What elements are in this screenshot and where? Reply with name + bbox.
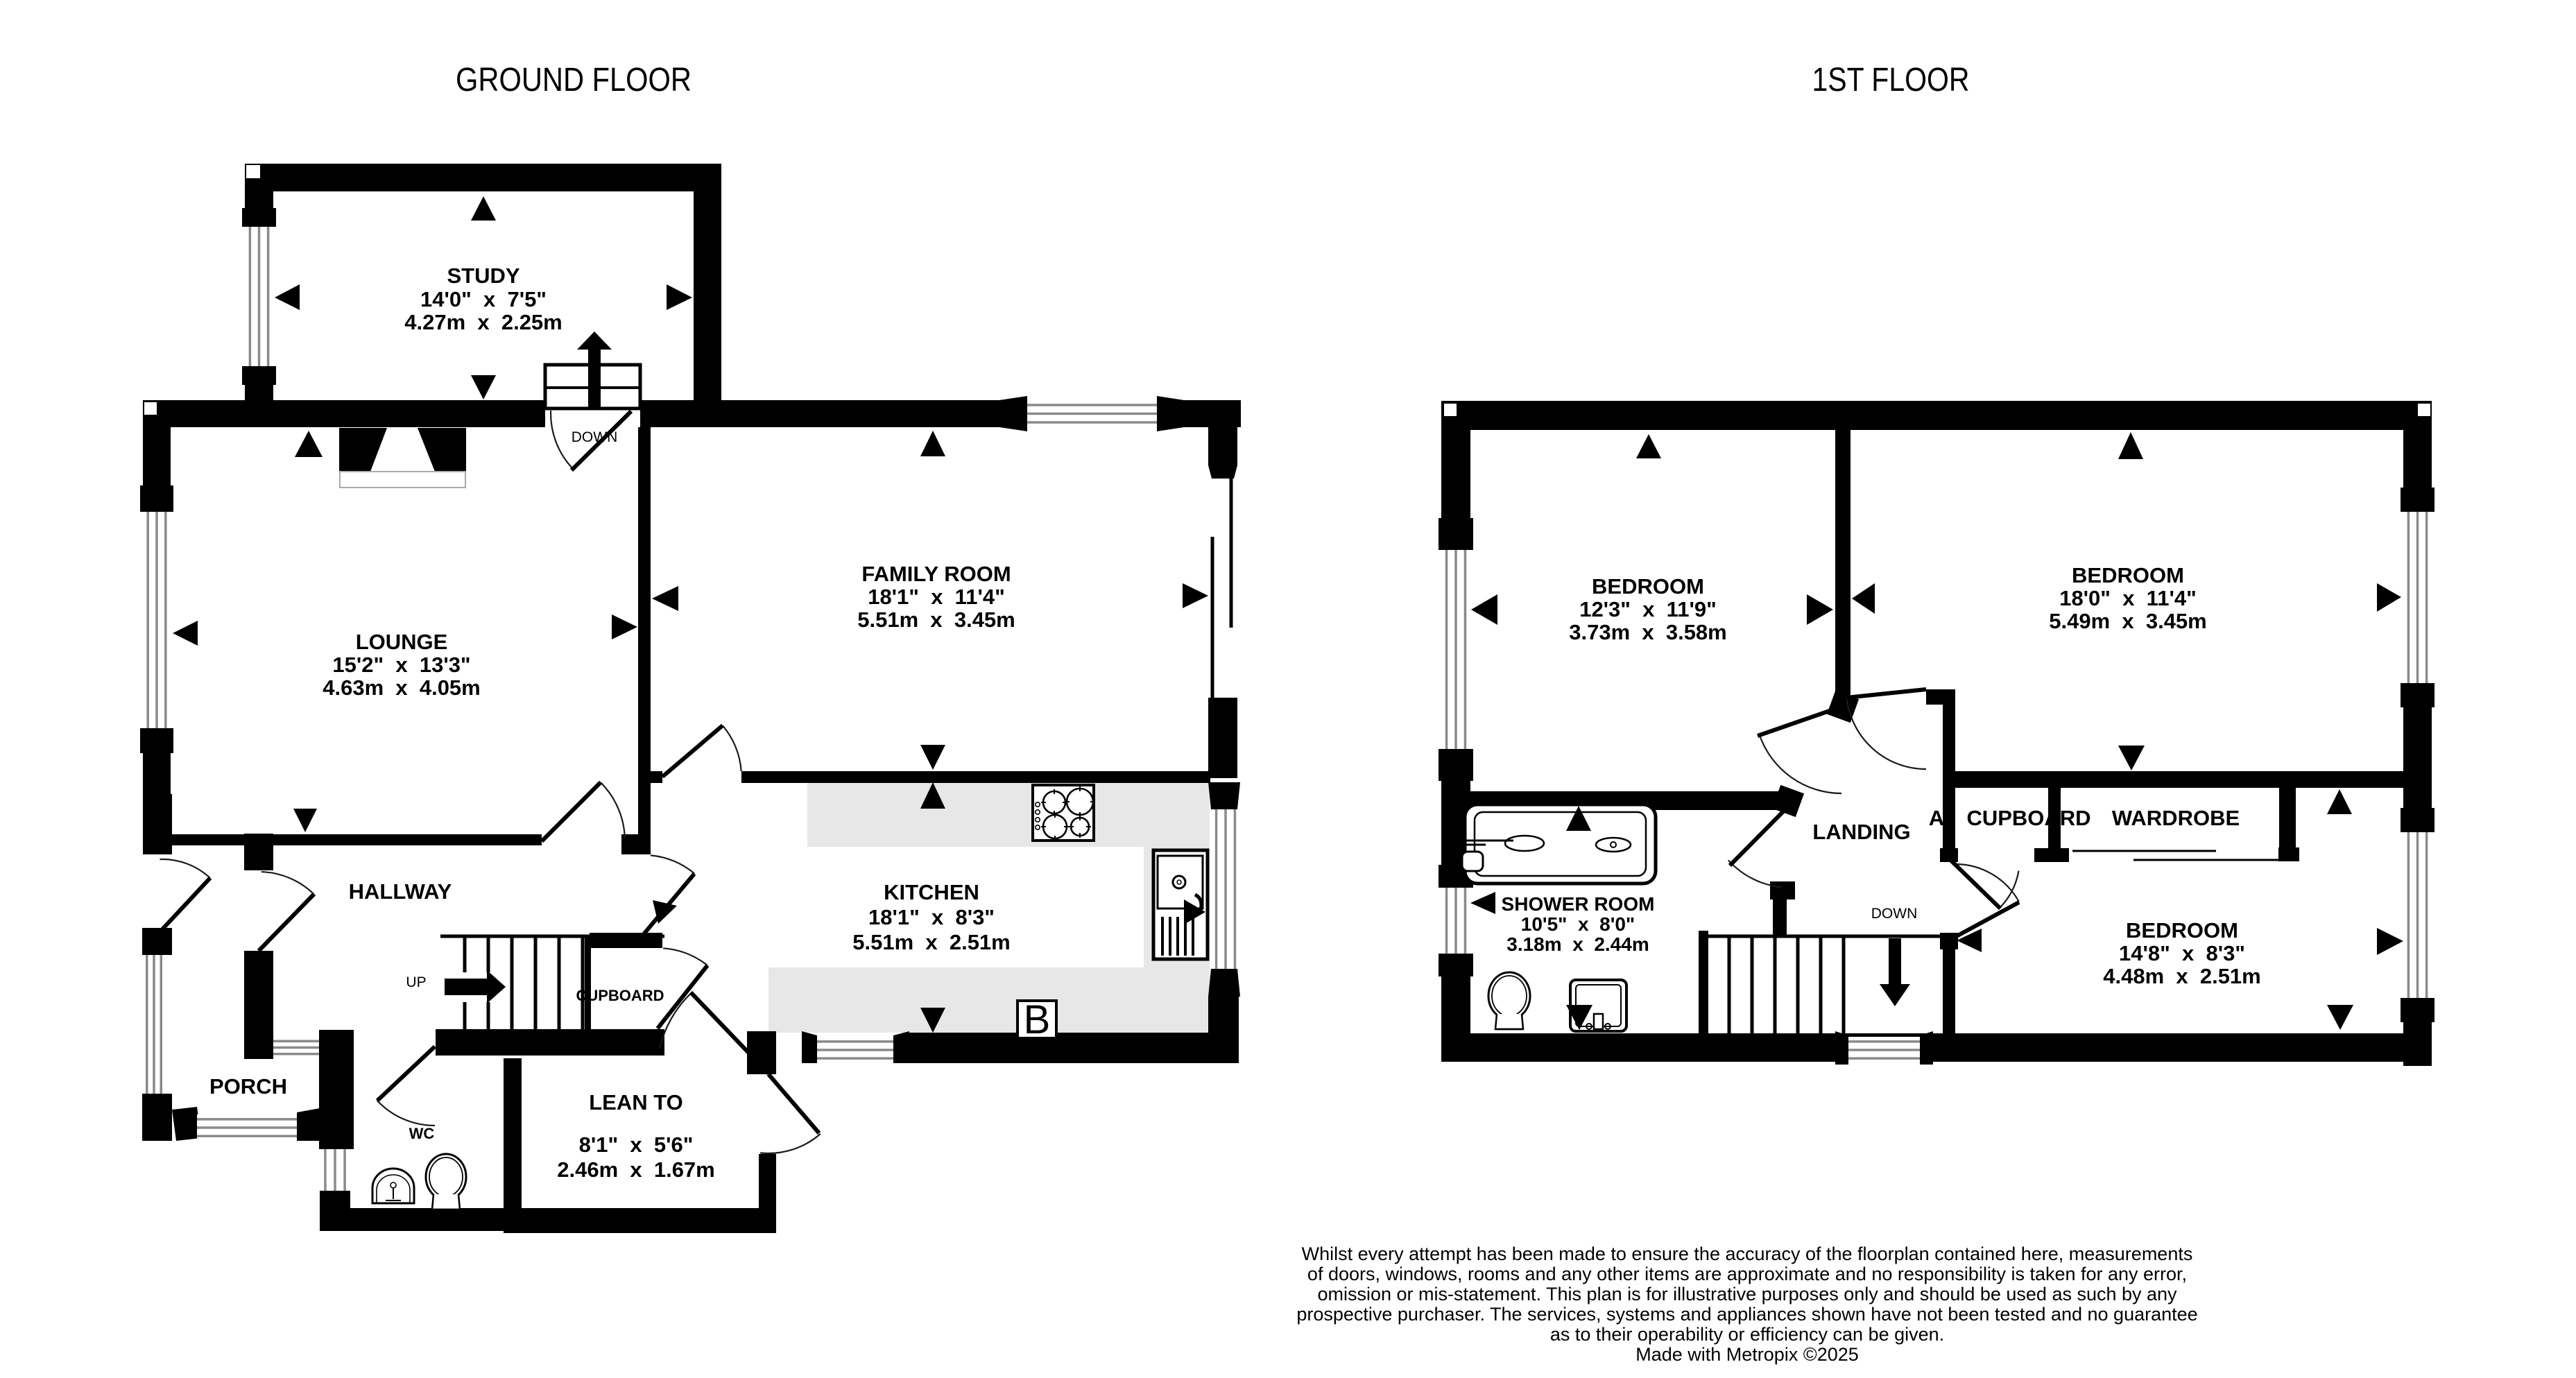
svg-text:CUPBOARD: CUPBOARD [1966, 806, 2090, 830]
svg-text:18'1" x 11'4": 18'1" x 11'4" [868, 585, 1005, 609]
svg-text:SHOWER ROOM: SHOWER ROOM [1502, 893, 1655, 915]
svg-text:BEDROOM: BEDROOM [2072, 563, 2184, 587]
svg-text:2.46m x 1.67m: 2.46m x 1.67m [557, 1157, 715, 1182]
svg-text:Whilst every attempt has been: Whilst every attempt has been made to en… [1302, 1243, 2193, 1264]
svg-text:LOUNGE: LOUNGE [356, 630, 448, 654]
svg-text:prospective purchaser. The ser: prospective purchaser. The services, sys… [1296, 1304, 2197, 1325]
svg-text:15'2" x 13'3": 15'2" x 13'3" [332, 653, 470, 677]
svg-text:CUPBOARD: CUPBOARD [576, 987, 664, 1004]
svg-text:4.48m x 2.51m: 4.48m x 2.51m [2103, 964, 2261, 988]
svg-text:1ST FLOOR: 1ST FLOOR [1812, 62, 1970, 98]
svg-text:LANDING: LANDING [1812, 820, 1910, 844]
svg-text:3.18m x 2.44m: 3.18m x 2.44m [1506, 933, 1649, 955]
svg-text:KITCHEN: KITCHEN [884, 880, 979, 904]
svg-text:DOWN: DOWN [572, 429, 618, 445]
svg-text:5.49m x 3.45m: 5.49m x 3.45m [2049, 609, 2207, 633]
svg-text:LEAN TO: LEAN TO [589, 1090, 683, 1114]
svg-text:BEDROOM: BEDROOM [2126, 918, 2238, 942]
svg-text:12'3" x 11'9": 12'3" x 11'9" [1579, 597, 1717, 621]
svg-text:14'8" x 8'3": 14'8" x 8'3" [2119, 941, 2245, 965]
svg-text:18'0" x 11'4": 18'0" x 11'4" [2059, 586, 2197, 610]
svg-text:DOWN: DOWN [1871, 906, 1918, 922]
svg-text:4.63m x 4.05m: 4.63m x 4.05m [323, 675, 481, 700]
svg-text:PORCH: PORCH [209, 1074, 287, 1099]
svg-text:10'5" x 8'0": 10'5" x 8'0" [1521, 913, 1635, 935]
svg-text:3.73m x 3.58m: 3.73m x 3.58m [1569, 620, 1727, 644]
svg-text:FAMILY ROOM: FAMILY ROOM [861, 562, 1011, 586]
svg-text:8'1" x 5'6": 8'1" x 5'6" [579, 1132, 694, 1157]
svg-text:4.27m x 2.25m: 4.27m x 2.25m [404, 310, 563, 334]
svg-text:B: B [1024, 997, 1051, 1042]
svg-text:14'0" x 7'5": 14'0" x 7'5" [420, 287, 547, 311]
svg-text:GROUND FLOOR: GROUND FLOOR [456, 62, 692, 98]
svg-text:HALLWAY: HALLWAY [349, 879, 452, 904]
svg-text:STUDY: STUDY [447, 264, 520, 288]
svg-text:Made with Metropix ©2025: Made with Metropix ©2025 [1635, 1344, 1859, 1365]
svg-text:BEDROOM: BEDROOM [1592, 574, 1704, 598]
svg-text:omission or mis-statement. Thi: omission or mis-statement. This plan is … [1317, 1284, 2177, 1304]
svg-text:WARDROBE: WARDROBE [2112, 806, 2240, 830]
svg-text:5.51m x 3.45m: 5.51m x 3.45m [857, 608, 1015, 632]
svg-text:UP: UP [406, 974, 426, 990]
svg-text:WC: WC [409, 1125, 435, 1142]
svg-text:5.51m x 2.51m: 5.51m x 2.51m [852, 930, 1011, 954]
svg-text:as to their operability or eff: as to their operability or efficiency ca… [1550, 1324, 1944, 1345]
svg-text:18'1" x 8'3": 18'1" x 8'3" [868, 905, 995, 929]
svg-text:A: A [1929, 806, 1944, 830]
svg-text:of doors, windows, rooms and a: of doors, windows, rooms and any other i… [1307, 1264, 2187, 1284]
